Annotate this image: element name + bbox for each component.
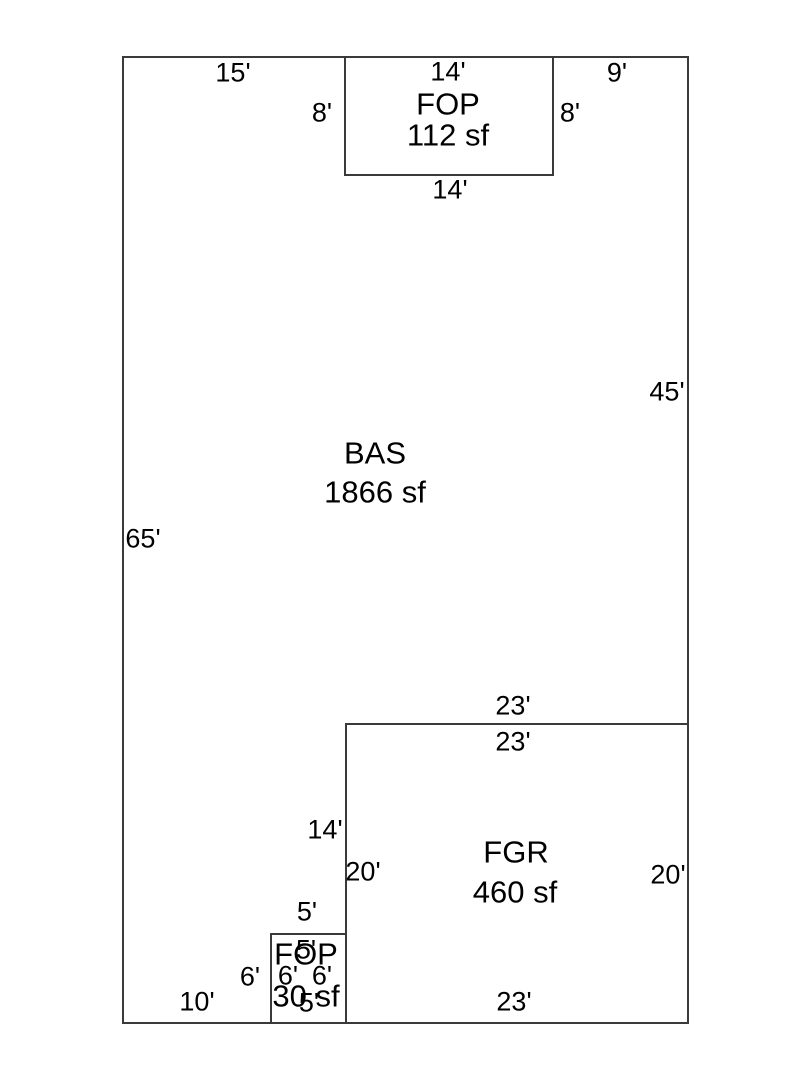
dimension-label: 6'	[278, 963, 298, 990]
dimension-label: 6'	[312, 963, 332, 990]
dimension-label: 9'	[607, 60, 627, 87]
room-area-label: 1866 sf	[324, 477, 426, 508]
dimension-label: 45'	[649, 379, 684, 406]
room-name-label: FOP	[416, 89, 480, 120]
dimension-label: 14'	[430, 59, 465, 86]
dimension-label: 8'	[312, 100, 332, 127]
dimension-label: 5'	[297, 899, 317, 926]
room-outline	[346, 724, 688, 1023]
dimension-label: 8'	[560, 100, 580, 127]
dimension-label: 20'	[650, 862, 685, 889]
dimension-label: 23'	[496, 989, 531, 1016]
room-area-label: 112 sf	[407, 120, 489, 151]
room-name-label: FGR	[483, 837, 548, 868]
room-name-label: BAS	[344, 438, 406, 469]
dimension-label: 6'	[240, 964, 260, 991]
dimension-label: 23'	[495, 729, 530, 756]
dimension-label: 65'	[125, 526, 160, 553]
dimension-label: 5'	[299, 990, 319, 1017]
dimension-label: 15'	[215, 60, 250, 87]
dimension-label: 14'	[432, 177, 467, 204]
floorplan-canvas	[0, 0, 810, 1080]
dimension-label: 14'	[307, 817, 342, 844]
room-area-label: 460 sf	[473, 877, 557, 908]
dimension-label: 23'	[495, 693, 530, 720]
building-outline	[123, 57, 688, 1023]
dimension-label: 20'	[345, 859, 380, 886]
dimension-label: 10'	[179, 989, 214, 1016]
sketch-page: BAS1866 sfFOP112 sfFGR460 sfFOP30 sf15'1…	[0, 0, 810, 1080]
dimension-label: 5'	[296, 937, 316, 964]
